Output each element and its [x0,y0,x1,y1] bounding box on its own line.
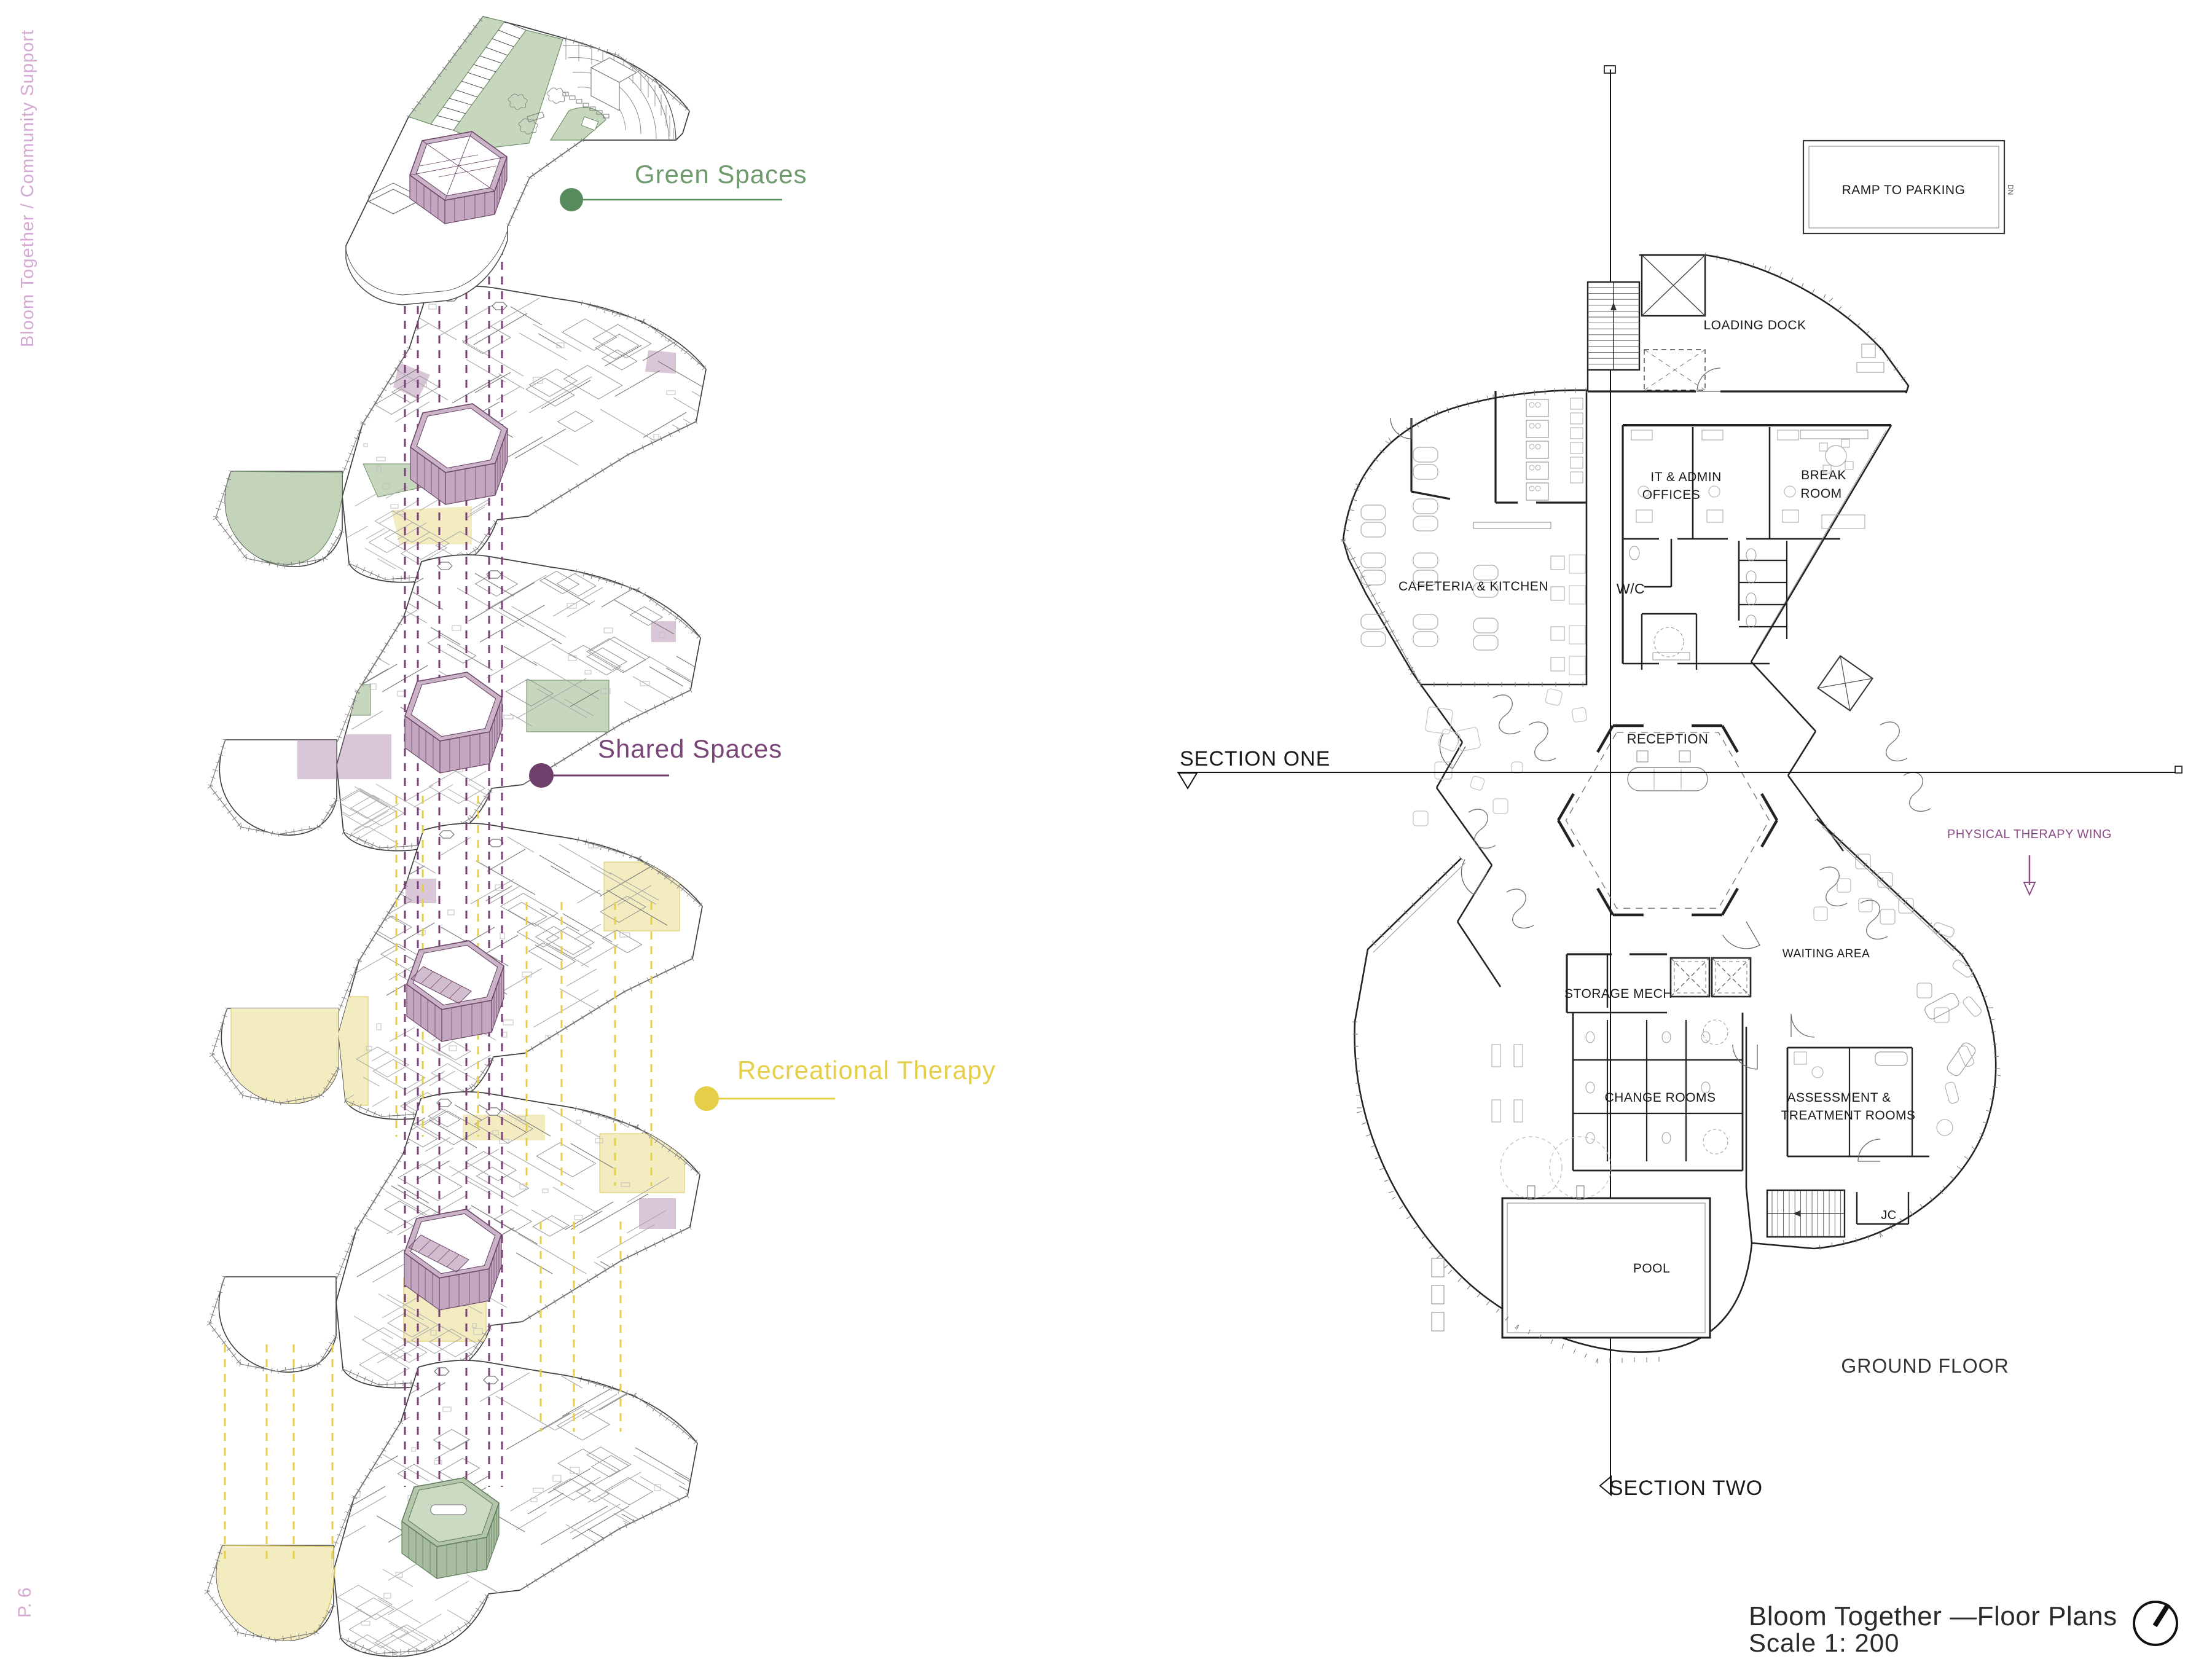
svg-text:POOL: POOL [1633,1261,1670,1276]
svg-text:P. 6: P. 6 [15,1588,35,1618]
svg-text:SECTION ONE: SECTION ONE [1180,747,1330,771]
svg-text:RECEPTION: RECEPTION [1627,731,1709,747]
svg-text:CAFETERIA & KITCHEN: CAFETERIA & KITCHEN [1398,579,1548,594]
svg-text:Bloom Together / Community Sup: Bloom Together / Community Support [18,29,37,347]
svg-text:GROUND FLOOR: GROUND FLOOR [1841,1355,2009,1377]
svg-text:PHYSICAL THERAPY WING: PHYSICAL THERAPY WING [1947,828,2112,841]
svg-text:OFFICES: OFFICES [1642,488,1701,502]
svg-text:BREAK: BREAK [1801,468,1846,482]
svg-text:TREATMENT ROOMS: TREATMENT ROOMS [1781,1108,1915,1123]
svg-text:Shared Spaces: Shared Spaces [598,734,782,763]
svg-text:LOADING DOCK: LOADING DOCK [1703,318,1806,332]
svg-text:ROOM: ROOM [1800,487,1841,501]
svg-text:CHANGE ROOMS: CHANGE ROOMS [1604,1091,1716,1105]
svg-text:SECTION TWO: SECTION TWO [1609,1477,1763,1500]
svg-text:Scale 1: 200: Scale 1: 200 [1749,1628,1900,1657]
svg-text:Recreational Therapy: Recreational Therapy [737,1056,996,1084]
svg-text:DN: DN [2006,184,2015,195]
svg-text:STORAGE MECH: STORAGE MECH [1564,987,1673,1001]
svg-text:Green Spaces: Green Spaces [635,160,807,189]
svg-text:JC: JC [1881,1209,1896,1222]
svg-text:W/C: W/C [1617,581,1645,597]
svg-text:IT & ADMIN: IT & ADMIN [1650,470,1721,484]
svg-text:RAMP TO PARKING: RAMP TO PARKING [1842,183,1966,197]
svg-text:ASSESSMENT &: ASSESSMENT & [1787,1091,1891,1105]
svg-text:WAITING AREA: WAITING AREA [1783,947,1870,960]
svg-text:Bloom Together —Floor Plans: Bloom Together —Floor Plans [1749,1601,2117,1631]
